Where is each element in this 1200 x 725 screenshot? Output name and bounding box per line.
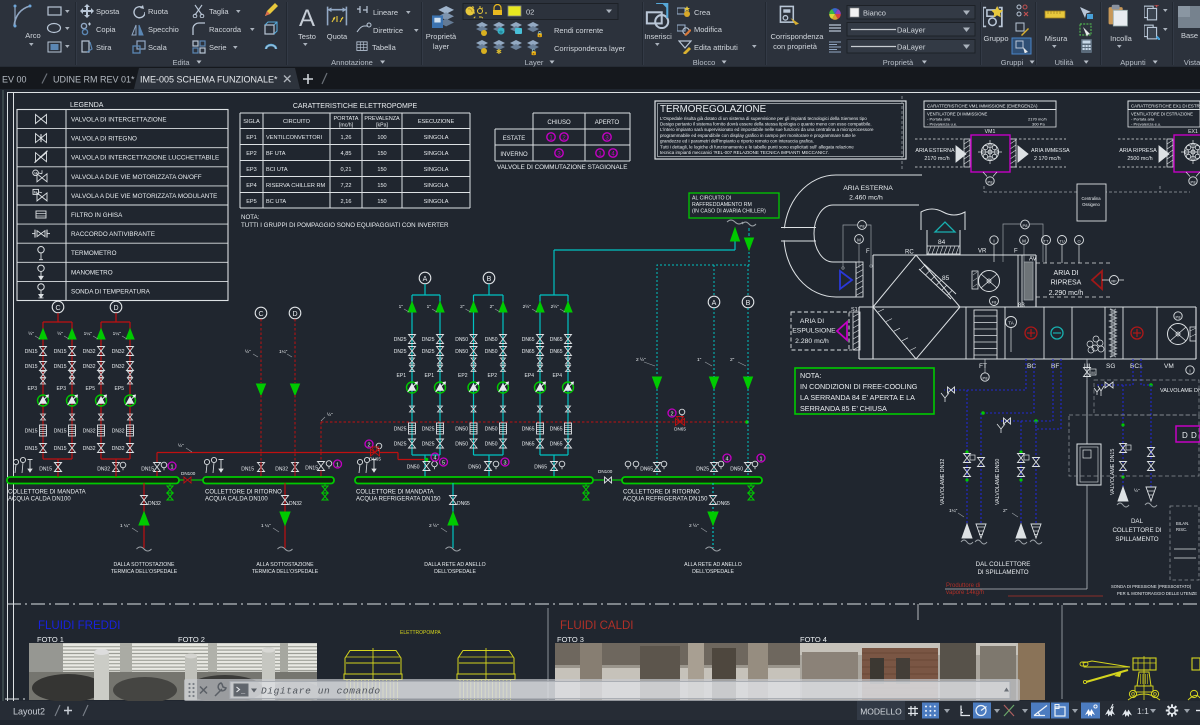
svg-text:BF UTA: BF UTA — [266, 151, 286, 157]
svg-text:DN65: DN65 — [522, 442, 535, 448]
svg-text:DN50: DN50 — [455, 337, 468, 343]
svg-text:EP3: EP3 — [57, 386, 67, 392]
svg-text:DaLayer: DaLayer — [897, 43, 926, 52]
svg-text:ACQUA CALDA DN100: ACQUA CALDA DN100 — [8, 497, 71, 503]
svg-text:½": ½" — [28, 330, 34, 337]
svg-text:BC UTA: BC UTA — [266, 199, 286, 205]
svg-text:EP1: EP1 — [397, 373, 407, 379]
svg-text:DN50: DN50 — [455, 349, 468, 355]
svg-text:Ruota: Ruota — [148, 7, 169, 16]
svg-text:FLUIDI FREDDI: FLUIDI FREDDI — [38, 620, 120, 632]
svg-text:DN65: DN65 — [674, 427, 686, 432]
svg-text:DN15: DN15 — [54, 429, 67, 435]
svg-text:1 ¼": 1 ¼" — [120, 523, 130, 529]
svg-text:DN15: DN15 — [54, 364, 67, 370]
svg-text:4: 4 — [725, 456, 728, 462]
svg-text:Blocco: Blocco — [693, 58, 716, 67]
svg-text:D: D — [1182, 431, 1188, 440]
svg-text:CARATTERISTICHE ELETTROPOMPE: CARATTERISTICHE ELETTROPOMPE — [293, 103, 418, 110]
svg-text:1": 1" — [427, 304, 432, 310]
svg-text:SINGOLA: SINGOLA — [424, 183, 449, 189]
svg-text:Layer: Layer — [525, 58, 544, 67]
svg-text:½": ½" — [327, 411, 333, 418]
svg-text:ACQUA CALDA DN100: ACQUA CALDA DN100 — [205, 497, 268, 503]
svg-text:EP1: EP1 — [246, 135, 257, 141]
svg-text:DaLayer: DaLayer — [897, 26, 926, 35]
svg-text:FOTO 2: FOTO 2 — [178, 635, 205, 644]
svg-text:DN15: DN15 — [305, 466, 318, 472]
svg-text:[kPa]: [kPa] — [376, 123, 388, 129]
svg-text:grandezze ed i parametri dell': grandezze ed i parametri dell'impianto e… — [660, 139, 814, 144]
svg-text:DN25: DN25 — [394, 337, 407, 343]
svg-text:TT: TT — [1044, 239, 1049, 244]
svg-text:SINGOLA: SINGOLA — [424, 167, 449, 173]
svg-text:150: 150 — [377, 167, 386, 173]
svg-text:DN32: DN32 — [275, 467, 288, 473]
svg-text:M: M — [34, 172, 37, 176]
svg-text:✱: ✱ — [496, 48, 502, 56]
svg-text:2 ½": 2 ½" — [689, 522, 699, 529]
svg-text:_: _ — [240, 688, 246, 696]
svg-text:FOTO 1: FOTO 1 — [37, 635, 64, 644]
svg-text:UDINE RM REV 01*: UDINE RM REV 01* — [53, 75, 135, 85]
svg-text:DN65: DN65 — [534, 465, 547, 471]
svg-text:2: 2 — [670, 411, 673, 417]
svg-text:SINGOLA: SINGOLA — [424, 199, 449, 205]
svg-text:DN25: DN25 — [422, 442, 435, 448]
svg-text:1": 1" — [399, 304, 404, 310]
svg-text:DN32: DN32 — [289, 501, 302, 507]
svg-text:Gruppo: Gruppo — [983, 34, 1008, 43]
svg-text:DN65: DN65 — [550, 442, 563, 448]
svg-text:1¼": 1¼" — [949, 508, 958, 514]
svg-text:TERMICA DELL’OSPEDALE: TERMICA DELL’OSPEDALE — [111, 569, 178, 575]
svg-text:DN15: DN15 — [39, 467, 52, 473]
svg-text:2": 2" — [490, 304, 495, 310]
svg-text:P8: P8 — [860, 223, 866, 228]
svg-text:VALVOLA A DUE VIE MOTORIZZATA: VALVOLA A DUE VIE MOTORIZZATA ON/OFF — [71, 174, 202, 181]
svg-text:SONDA DI PRESSIONE (PRESSOSTAT: SONDA DI PRESSIONE (PRESSOSTATO) — [1111, 584, 1192, 589]
svg-text:EP5: EP5 — [86, 386, 96, 392]
svg-text:½": ½" — [1134, 487, 1140, 494]
svg-text:EP3: EP3 — [28, 386, 38, 392]
svg-text:TERMOMETRO: TERMOMETRO — [71, 250, 117, 257]
svg-text:Base: Base — [1181, 31, 1198, 40]
svg-text:Corrispondenza: Corrispondenza — [771, 32, 825, 41]
svg-text:Lineare: Lineare — [373, 8, 398, 17]
svg-text:Produttore di: Produttore di — [946, 583, 980, 589]
svg-text:DN15: DN15 — [25, 446, 38, 452]
svg-text:Ossigeno: Ossigeno — [1082, 202, 1100, 207]
svg-text:P8: P8 — [983, 375, 989, 380]
svg-text:DN15: DN15 — [25, 349, 38, 355]
svg-text:vapore 14kg/h: vapore 14kg/h — [946, 590, 984, 596]
svg-text:CARATTERISTICHE EX1 DI ESTR: CARATTERISTICHE EX1 DI ESTR — [1131, 104, 1200, 109]
svg-text:DN25: DN25 — [394, 442, 407, 448]
svg-text:TU: TU — [1059, 239, 1064, 244]
svg-text:CHIUSO: CHIUSO — [547, 120, 571, 126]
svg-text:DN65: DN65 — [717, 501, 730, 507]
svg-text:1¼": 1¼" — [84, 331, 93, 337]
svg-text:Layout2: Layout2 — [13, 707, 45, 717]
svg-text:tecnica impianti meccanici 'RE: tecnica impianti meccanici 'REL-007 RELA… — [660, 150, 829, 155]
svg-text:VALVOLA A DUE VIE MOTORIZZATA: VALVOLA A DUE VIE MOTORIZZATA MODULANTE — [71, 193, 217, 200]
svg-text:1: 1 — [170, 464, 173, 470]
svg-text:DN50: DN50 — [485, 337, 498, 343]
svg-text:RAFFREDDAMENTO RM: RAFFREDDAMENTO RM — [692, 202, 752, 208]
svg-text:DN32: DN32 — [83, 364, 96, 370]
svg-text:EP5: EP5 — [115, 386, 125, 392]
svg-text:3: 3 — [503, 460, 506, 466]
svg-text:ESTATE: ESTATE — [503, 136, 525, 142]
svg-text:MODELLO: MODELLO — [860, 707, 902, 717]
svg-text:NOTA:: NOTA: — [800, 371, 821, 380]
svg-text:COLLETTORE DI RITORNO: COLLETTORE DI RITORNO — [205, 490, 282, 496]
svg-text:B: B — [487, 276, 492, 283]
svg-text:Tabella: Tabella — [372, 43, 397, 52]
svg-text:DN100: DN100 — [181, 471, 196, 476]
svg-text:DN25: DN25 — [696, 467, 709, 473]
svg-text:DN50: DN50 — [468, 465, 481, 471]
svg-text:Inserisci: Inserisci — [644, 32, 672, 41]
svg-text:TERMOREGOLAZIONE: TERMOREGOLAZIONE — [660, 104, 767, 115]
svg-text:DN65: DN65 — [522, 349, 535, 355]
svg-text:84: 84 — [938, 239, 946, 246]
svg-text:150: 150 — [377, 151, 386, 157]
svg-text:SINGOLA: SINGOLA — [424, 135, 449, 141]
svg-text:DAL: DAL — [1131, 518, 1144, 525]
svg-text:F: F — [1014, 249, 1018, 255]
svg-text:Quota: Quota — [327, 32, 348, 41]
svg-text:ALLA RETE AD ANELLO: ALLA RETE AD ANELLO — [684, 562, 742, 568]
svg-text:Digitare un comando: Digitare un comando — [261, 686, 381, 697]
svg-text:D: D — [113, 305, 118, 312]
svg-text:EP3: EP3 — [246, 167, 257, 173]
svg-text:DN32: DN32 — [83, 446, 96, 452]
svg-text:ALLA SOTTOSTAZIONE: ALLA SOTTOSTAZIONE — [256, 562, 314, 568]
svg-text:[mc/h]: [mc/h] — [339, 123, 354, 129]
svg-text:🔒: 🔒 — [536, 30, 543, 38]
svg-text:Annotazione: Annotazione — [331, 58, 373, 67]
svg-text:1: 1 — [336, 462, 339, 468]
svg-text:DELL’OSPEDALE: DELL’OSPEDALE — [692, 569, 734, 575]
svg-text:D: D — [292, 311, 297, 318]
svg-text:L'intero impianto sarà supervi: L'intero impianto sarà supervisionato ed… — [660, 127, 874, 132]
svg-text:Utilità: Utilità — [1055, 58, 1075, 67]
svg-text:Edita attributi: Edita attributi — [694, 43, 738, 52]
svg-text:LEGENDA: LEGENDA — [70, 102, 104, 109]
svg-text:RF: RF — [1111, 279, 1117, 284]
svg-text:DN25: DN25 — [422, 337, 435, 343]
svg-text:½": ½" — [57, 330, 63, 337]
svg-text:P8: P8 — [1191, 179, 1197, 184]
svg-text:2": 2" — [1003, 508, 1008, 514]
svg-text:P8: P8 — [988, 179, 994, 184]
svg-text:(IN CASO DI AVARIA CHILLER): (IN CASO DI AVARIA CHILLER) — [692, 209, 766, 215]
svg-text:2500 mc/h: 2500 mc/h — [1127, 156, 1152, 162]
svg-text:DN50: DN50 — [485, 427, 498, 433]
svg-text:2 ½": 2 ½" — [429, 522, 439, 529]
svg-text:DN15: DN15 — [141, 467, 154, 473]
svg-text:NOTA:: NOTA: — [241, 214, 260, 221]
svg-text:DN65: DN65 — [550, 337, 563, 343]
svg-text:A: A — [299, 5, 315, 32]
svg-text:DELL’OSPEDALE: DELL’OSPEDALE — [434, 569, 476, 575]
svg-text:ESPULSIONE: ESPULSIONE — [792, 328, 836, 335]
svg-text:BC: BC — [1027, 363, 1036, 370]
svg-text:DN65: DN65 — [550, 349, 563, 355]
svg-text:Arco: Arco — [25, 31, 40, 40]
svg-text:MANOMETRO: MANOMETRO — [71, 269, 113, 276]
svg-text:DN32: DN32 — [148, 501, 161, 507]
svg-text:VR: VR — [978, 249, 987, 255]
svg-text:2 170 mc/h: 2 170 mc/h — [1034, 156, 1061, 162]
svg-text:INVERNO: INVERNO — [500, 152, 528, 158]
svg-text:ESECUZIONE: ESECUZIONE — [418, 119, 455, 125]
svg-text:Crea: Crea — [694, 8, 711, 17]
svg-text:✲: ✲ — [499, 30, 503, 36]
svg-text:150: 150 — [377, 199, 386, 205]
svg-text:SPILLAMENTO: SPILLAMENTO — [1115, 536, 1158, 543]
svg-text:½": ½" — [245, 348, 251, 355]
svg-text:LA SERRANDA 84 E’ APERTA E LA: LA SERRANDA 84 E’ APERTA E LA — [800, 393, 915, 402]
svg-text:DN65: DN65 — [457, 501, 470, 507]
svg-text:layer: layer — [433, 42, 450, 51]
svg-text:DN65: DN65 — [550, 427, 563, 433]
svg-text:150: 150 — [377, 183, 386, 189]
svg-text:EP2: EP2 — [246, 151, 257, 157]
svg-text:DN32: DN32 — [112, 429, 125, 435]
svg-text:DALLA RETE AD ANELLO: DALLA RETE AD ANELLO — [424, 562, 485, 568]
svg-text:ARIA DI: ARIA DI — [1054, 270, 1079, 277]
svg-text:M: M — [1091, 370, 1094, 375]
svg-text:DALLA SOTTOSTAZIONE: DALLA SOTTOSTAZIONE — [114, 562, 175, 568]
svg-text:ARIA DI: ARIA DI — [800, 318, 824, 325]
svg-text:COLLETTORE DI: COLLETTORE DI — [1112, 527, 1161, 534]
svg-text:DN50: DN50 — [730, 467, 743, 473]
svg-text:F8: F8 — [992, 299, 997, 304]
svg-text:DN32: DN32 — [112, 446, 125, 452]
svg-text:ACQUA REFRIGERATA DN150: ACQUA REFRIGERATA DN150 — [623, 497, 708, 503]
svg-text:DN65: DN65 — [522, 337, 535, 343]
svg-text:5: 5 — [442, 460, 445, 466]
svg-text:SERRANDA 85 E’ CHIUSA: SERRANDA 85 E’ CHIUSA — [800, 404, 887, 413]
svg-text:DN15: DN15 — [241, 467, 254, 473]
svg-text:DN50: DN50 — [455, 427, 468, 433]
svg-text:Tutti i dettagli, le logiche d: Tutti i dettagli, le logiche di funziona… — [660, 144, 854, 149]
svg-text:PER IL MONITORAGGIO DELLE UTEN: PER IL MONITORAGGIO DELLE UTENZE — [1117, 591, 1197, 596]
svg-text:VALVOLA DI INTERCETTAZIONE: VALVOLA DI INTERCETTAZIONE — [71, 117, 167, 124]
svg-text:Serie: Serie — [209, 43, 227, 52]
svg-text:Edita: Edita — [172, 58, 190, 67]
svg-text:Proprietà: Proprietà — [426, 32, 457, 41]
svg-text:DN65: DN65 — [640, 467, 653, 473]
svg-text:1 ¼": 1 ¼" — [261, 523, 271, 529]
svg-text:EP4: EP4 — [525, 373, 535, 379]
svg-text:TERMICA DELL’OSPEDALE: TERMICA DELL’OSPEDALE — [252, 569, 319, 575]
svg-text:DAL COLLETTORE: DAL COLLETTORE — [976, 561, 1031, 568]
svg-text:ARIA ESTERNA: ARIA ESTERNA — [843, 185, 893, 192]
svg-text:4: 4 — [433, 455, 436, 461]
svg-text:PREVALENZA: PREVALENZA — [364, 116, 400, 122]
svg-text:ARIA IMMESSA: ARIA IMMESSA — [1031, 148, 1070, 154]
svg-text:2.290 mc/h: 2.290 mc/h — [1049, 290, 1084, 297]
svg-text:DN32: DN32 — [83, 349, 96, 355]
svg-text:DN25: DN25 — [422, 427, 435, 433]
svg-text:VALVOLAME DN50: VALVOLAME DN50 — [995, 459, 1001, 505]
svg-text:ACQUA REFRIGERATA DN150: ACQUA REFRIGERATA DN150 — [356, 497, 441, 503]
svg-text:Vista: Vista — [1184, 58, 1200, 67]
svg-text:DN15: DN15 — [54, 349, 67, 355]
svg-text:EP4: EP4 — [246, 183, 257, 189]
svg-text:Raccorda: Raccorda — [209, 25, 242, 34]
svg-text:FT: FT — [979, 363, 987, 370]
svg-text:1¼": 1¼" — [113, 331, 122, 337]
svg-text:A: A — [712, 300, 717, 307]
svg-text:BILAN.: BILAN. — [1176, 521, 1189, 526]
svg-text:EV 00: EV 00 — [2, 75, 27, 85]
svg-text:L'Ospedale risulta già dotato: L'Ospedale risulta già dotato di un sist… — [660, 116, 867, 121]
svg-text:COLLETTORE DI RITORNO: COLLETTORE DI RITORNO — [623, 490, 700, 496]
svg-text:SIGLA: SIGLA — [243, 119, 260, 125]
svg-text:½": ½" — [178, 442, 184, 449]
svg-text:A: A — [423, 276, 428, 283]
svg-text:ELETTROPOMPA: ELETTROPOMPA — [400, 630, 441, 636]
svg-text:TUTTI I GRUPPI DI POMPAGGIO SO: TUTTI I GRUPPI DI POMPAGGIO SONO EQUIPAG… — [241, 222, 449, 229]
svg-text:2": 2" — [730, 357, 735, 363]
svg-text:02: 02 — [526, 8, 534, 17]
svg-text:DN15: DN15 — [25, 429, 38, 435]
svg-text:Desigo pertanto il sistema for: Desigo pertanto il sistema fornito dovrà… — [660, 122, 872, 127]
svg-text:Bianco: Bianco — [863, 9, 886, 18]
svg-text:300 Pa: 300 Pa — [1032, 122, 1045, 127]
svg-text:2170 mc/h: 2170 mc/h — [924, 156, 949, 162]
svg-text:IN CONDIZIONI DI FREE-COOLING: IN CONDIZIONI DI FREE-COOLING — [800, 382, 918, 391]
svg-text:RISC.: RISC. — [1176, 527, 1187, 532]
svg-text:2": 2" — [460, 304, 465, 310]
svg-text:EP2: EP2 — [458, 373, 468, 379]
svg-text:CIRCUITO: CIRCUITO — [283, 119, 311, 125]
svg-text:AL CIRCUITO DI: AL CIRCUITO DI — [692, 196, 731, 202]
svg-text:VALVOLAME DN4: VALVOLAME DN4 — [1160, 388, 1200, 394]
svg-text:Centralina: Centralina — [1081, 196, 1101, 201]
svg-text:1:1: 1:1 — [1137, 706, 1149, 716]
svg-text:COLLETTORE DI MANDATA: COLLETTORE DI MANDATA — [8, 490, 86, 496]
svg-text:Corrispondenza layer: Corrispondenza layer — [554, 44, 626, 53]
svg-text:SINGOLA: SINGOLA — [424, 151, 449, 157]
svg-text:EP1: EP1 — [425, 373, 435, 379]
svg-text:Rendi corrente: Rendi corrente — [554, 26, 603, 35]
svg-text:FILTRO IN GHISA: FILTRO IN GHISA — [71, 212, 123, 219]
svg-text:VALVOLA DI RITEGNO: VALVOLA DI RITEGNO — [71, 136, 137, 143]
svg-text:PORTATA: PORTATA — [333, 116, 358, 122]
svg-text:I: I — [1189, 369, 1190, 374]
svg-text:- Prevalenza u.e.: - Prevalenza u.e. — [927, 122, 957, 127]
svg-text:ARIA RIPRESA: ARIA RIPRESA — [1119, 148, 1157, 154]
svg-text:Testo: Testo — [298, 32, 316, 41]
svg-text:Incolla: Incolla — [1110, 34, 1133, 43]
svg-text:EX1: EX1 — [1188, 129, 1198, 135]
svg-text:DN65: DN65 — [369, 457, 381, 462]
svg-text:Taglia: Taglia — [209, 7, 229, 16]
svg-text:programmabile ed espandibile c: programmabile ed espandibile con display… — [660, 133, 856, 138]
svg-text:Misura: Misura — [1045, 34, 1068, 43]
svg-text:COLLETTORE DI MANDATA: COLLETTORE DI MANDATA — [356, 490, 434, 496]
svg-text:M: M — [1022, 239, 1026, 244]
svg-text:F: F — [866, 249, 870, 255]
svg-text:2½": 2½" — [551, 303, 560, 310]
svg-text:100: 100 — [377, 135, 386, 141]
svg-text:2,16: 2,16 — [341, 199, 352, 205]
svg-text:EP2: EP2 — [488, 373, 498, 379]
svg-text:DN15: DN15 — [54, 446, 67, 452]
svg-text:C: C — [258, 311, 263, 318]
svg-text:ARIA ESTERNA: ARIA ESTERNA — [915, 148, 955, 154]
svg-text:DN15: DN15 — [25, 364, 38, 370]
svg-text:2.280 mc/h: 2.280 mc/h — [795, 338, 829, 345]
svg-text:BCI UTA: BCI UTA — [266, 167, 288, 173]
svg-text:- Prevalenza e.u.: - Prevalenza e.u. — [1131, 122, 1161, 127]
svg-text:EP4: EP4 — [553, 373, 563, 379]
svg-text:DN50: DN50 — [485, 442, 498, 448]
svg-text:1: 1 — [759, 456, 762, 462]
svg-text:DN32: DN32 — [112, 364, 125, 370]
svg-text:Stira: Stira — [96, 43, 112, 52]
svg-text:1": 1" — [697, 357, 702, 363]
svg-text:FLUIDI CALDI: FLUIDI CALDI — [560, 620, 634, 632]
svg-text:CARATTERISTICHE VM1 IMMISSIONE: CARATTERISTICHE VM1 IMMISSIONE (EMERGENZ… — [927, 104, 1038, 109]
svg-text:VENTILCONVETTORI: VENTILCONVETTORI — [266, 135, 323, 141]
svg-text:DI SPILLAMENTO: DI SPILLAMENTO — [977, 569, 1028, 576]
svg-text:VALVOLAME DN15: VALVOLAME DN15 — [1110, 449, 1116, 495]
svg-text:VALVOLE DI COMMUTAZIONE STAGIO: VALVOLE DI COMMUTAZIONE STAGIONALE — [497, 164, 627, 171]
svg-text:M: M — [34, 191, 37, 195]
svg-text:FOTO 3: FOTO 3 — [557, 635, 584, 644]
svg-text:EP5: EP5 — [246, 199, 257, 205]
svg-text:🔓: 🔓 — [530, 48, 537, 56]
svg-text:0,21: 0,21 — [341, 167, 352, 173]
svg-text:DN50: DN50 — [485, 349, 498, 355]
svg-text:Gruppi: Gruppi — [1001, 58, 1024, 67]
svg-text:SG: SG — [1106, 363, 1115, 370]
svg-text:2: 2 — [367, 442, 370, 448]
svg-text:Specchio: Specchio — [148, 25, 179, 34]
svg-text:SONDA DI TEMPERATURA: SONDA DI TEMPERATURA — [71, 288, 151, 295]
svg-text:RISERVA CHILLER RM: RISERVA CHILLER RM — [266, 183, 326, 189]
svg-text:1,26: 1,26 — [341, 135, 352, 141]
svg-text:2½": 2½" — [523, 303, 532, 310]
svg-text:83: 83 — [1018, 303, 1025, 309]
svg-text:Proprietà: Proprietà — [883, 58, 914, 67]
svg-text:O: O — [1077, 239, 1080, 244]
svg-text:I: I — [993, 239, 994, 244]
svg-text:VM1: VM1 — [985, 129, 996, 135]
svg-text:P8: P8 — [1176, 314, 1182, 319]
svg-text:VALVOLA DI INTERCETTAZIONE LUC: VALVOLA DI INTERCETTAZIONE LUCCHETTABILE — [71, 155, 219, 162]
svg-text:DN100: DN100 — [598, 469, 613, 474]
svg-text:4,85: 4,85 — [341, 151, 352, 157]
svg-text:IME-005 SCHEMA FUNZIONALE*: IME-005 SCHEMA FUNZIONALE* — [140, 75, 278, 85]
svg-text:Direttrice: Direttrice — [373, 26, 403, 35]
svg-text:M: M — [857, 238, 861, 243]
svg-text:con proprietà: con proprietà — [773, 42, 818, 51]
svg-text:APERTO: APERTO — [595, 120, 620, 126]
svg-text:DN32: DN32 — [97, 467, 110, 473]
svg-text:VALVOLAME DN32: VALVOLAME DN32 — [940, 459, 946, 505]
svg-text:Modifica: Modifica — [694, 25, 723, 34]
svg-text:DN25: DN25 — [394, 349, 407, 355]
svg-text:DN50: DN50 — [407, 465, 420, 471]
